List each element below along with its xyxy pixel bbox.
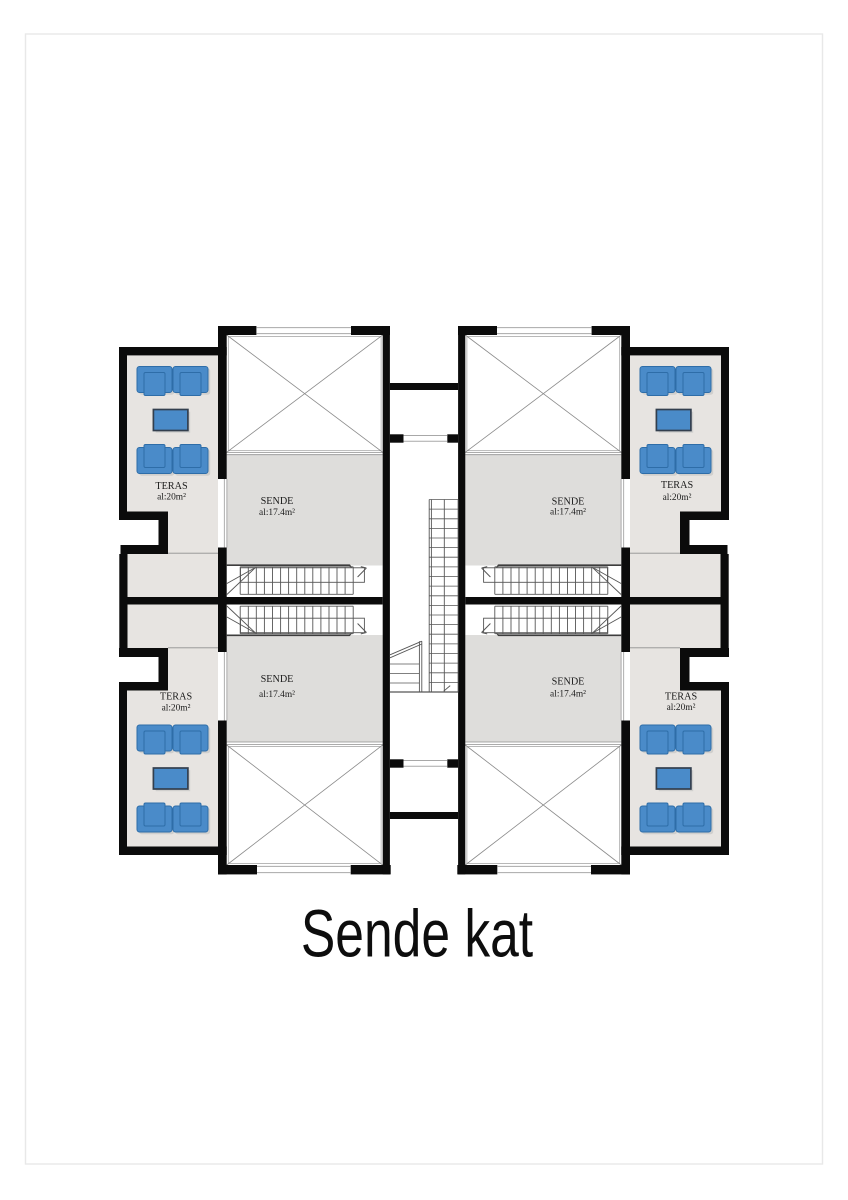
svg-text:al:20m²: al:20m²	[667, 703, 696, 713]
svg-text:al:20m²: al:20m²	[663, 493, 692, 503]
svg-text:al:17.4m²: al:17.4m²	[259, 508, 295, 518]
svg-text:TERAS: TERAS	[661, 480, 694, 491]
svg-text:al:20m²: al:20m²	[157, 493, 186, 503]
svg-text:TERAS: TERAS	[665, 692, 698, 703]
svg-text:al:20m²: al:20m²	[162, 704, 191, 714]
svg-text:SENDE: SENDE	[552, 497, 585, 508]
svg-text:TERAS: TERAS	[160, 692, 193, 703]
svg-text:Sende kat: Sende kat	[301, 896, 534, 971]
svg-text:SENDE: SENDE	[552, 677, 585, 688]
svg-text:al:17.4m²: al:17.4m²	[550, 690, 586, 700]
svg-text:SENDE: SENDE	[261, 674, 294, 685]
svg-text:TERAS: TERAS	[155, 481, 188, 492]
svg-text:SENDE: SENDE	[261, 496, 294, 507]
svg-text:al:17.4m²: al:17.4m²	[259, 690, 295, 700]
svg-text:al:17.4m²: al:17.4m²	[550, 508, 586, 518]
